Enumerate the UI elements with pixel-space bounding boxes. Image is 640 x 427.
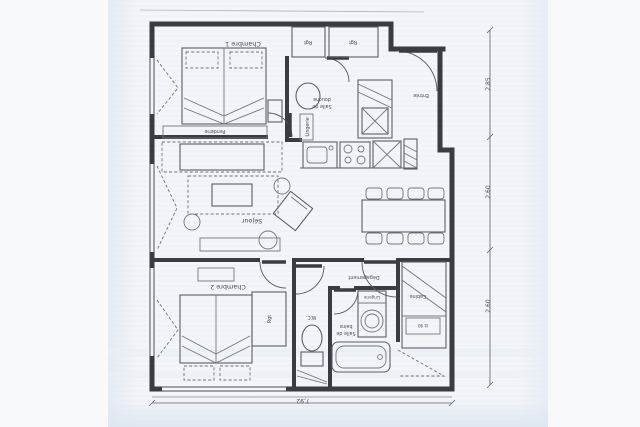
kitchen <box>300 80 417 169</box>
dining-table-icon <box>362 200 445 232</box>
room-salle-de-douche: Lingerie Salle de douche <box>296 83 332 140</box>
dim-right-top: 2,85 <box>485 77 492 91</box>
window-swing-dashed <box>157 60 178 114</box>
rug-outline <box>188 176 278 214</box>
svg-text:bains: bains <box>339 323 352 329</box>
washing-machine-drum <box>361 310 383 332</box>
sejour-label: Séjour <box>241 217 262 225</box>
cabine-label: Cabine <box>410 293 427 299</box>
sdb-label: Salle de bains <box>336 323 355 336</box>
pillow-icon <box>230 52 262 68</box>
burner-icon <box>345 157 351 163</box>
floor-plan: Penderie Chambre 1 Rgt Rgt Lingerie Sall… <box>0 0 640 427</box>
room-chambre-1: Penderie Chambre 1 <box>163 40 282 138</box>
pouf-icon <box>259 231 277 249</box>
left-wall-windows <box>148 58 178 358</box>
lit90-label: lit 90 <box>417 323 428 328</box>
chair-icon <box>428 188 444 199</box>
douche-door-arc <box>325 58 349 82</box>
douche-label: Salle de douche <box>312 96 331 109</box>
sink-basin-icon <box>307 147 327 163</box>
entry-door-arc <box>397 51 437 91</box>
chair-icon <box>428 233 444 244</box>
svg-text:douche: douche <box>313 96 331 102</box>
dining-area <box>362 188 445 244</box>
cabine-door-swing <box>398 350 444 376</box>
entry-closets: Rgt Rgt <box>292 27 378 57</box>
rgt-label: Rgt <box>267 315 273 323</box>
hob-unit <box>340 142 370 168</box>
rgt-label: Rgt <box>349 39 357 45</box>
wc-label: W.C. <box>306 314 317 320</box>
bottom-wall-window <box>162 385 286 393</box>
penderie-label: Penderie <box>204 128 225 134</box>
room-salle-de-bains: Lingerie Salle de bains <box>332 291 390 372</box>
room-sejour: Séjour <box>162 142 313 251</box>
dim-right-middle: 2,60 <box>485 185 492 199</box>
scan-edge-line <box>140 10 424 12</box>
chair-icon <box>366 233 382 244</box>
degagement-label: Dégagement <box>348 274 379 281</box>
burner-icon <box>358 146 364 152</box>
chair-icon <box>408 188 424 199</box>
toilet-icon <box>302 325 322 351</box>
pouf-icon <box>274 178 290 194</box>
lingerie-column-label: Lingerie <box>305 117 311 136</box>
dim-bottom-width: 7,92 <box>296 397 310 404</box>
appliance-cross <box>362 108 388 134</box>
pouf-icon <box>184 214 200 230</box>
chair-icon <box>387 188 403 199</box>
chair-icon <box>366 188 382 199</box>
lingerie-label: Lingerie <box>363 295 380 300</box>
chair-icon <box>387 233 403 244</box>
pillow-icon <box>186 52 218 68</box>
burner-icon <box>344 145 352 153</box>
wc-door-arc <box>296 266 324 294</box>
chambre2-door-arc <box>260 262 286 288</box>
appliance-cross <box>373 141 401 168</box>
room-cabine: lit 90 Cabine <box>402 262 446 348</box>
armchair-icon <box>273 191 312 230</box>
bunk-bed-icon <box>402 262 446 348</box>
drain-icon <box>378 355 383 360</box>
window-swing-dashed <box>157 300 178 358</box>
chambre1-label: Chambre 1 <box>225 40 261 48</box>
chambre2-label: Chambre 2 <box>210 283 246 291</box>
entree-label: Entrée <box>413 92 429 99</box>
toilet-tank-icon <box>301 352 323 366</box>
dim-right-bottom: 2,60 <box>485 299 492 313</box>
burner-icon <box>357 156 365 164</box>
desk-icon <box>198 268 234 281</box>
room-chambre-2: Rgt Chambre 2 <box>180 268 286 380</box>
svg-text:Salle de: Salle de <box>312 103 331 109</box>
faucet-icon <box>329 146 333 150</box>
pillow-icon <box>184 366 214 380</box>
svg-text:Salle de: Salle de <box>336 330 355 336</box>
rgt-label: Rgt <box>304 39 312 45</box>
chair-icon <box>408 233 424 244</box>
sdb-door-arc <box>334 290 358 314</box>
sideboard-icon <box>180 144 264 170</box>
room-wc: W.C. <box>297 314 327 384</box>
pillow-icon <box>220 366 250 380</box>
window-swing-dashed <box>157 166 177 250</box>
coffee-table-icon <box>212 184 252 206</box>
nightstand-icon <box>268 100 282 122</box>
